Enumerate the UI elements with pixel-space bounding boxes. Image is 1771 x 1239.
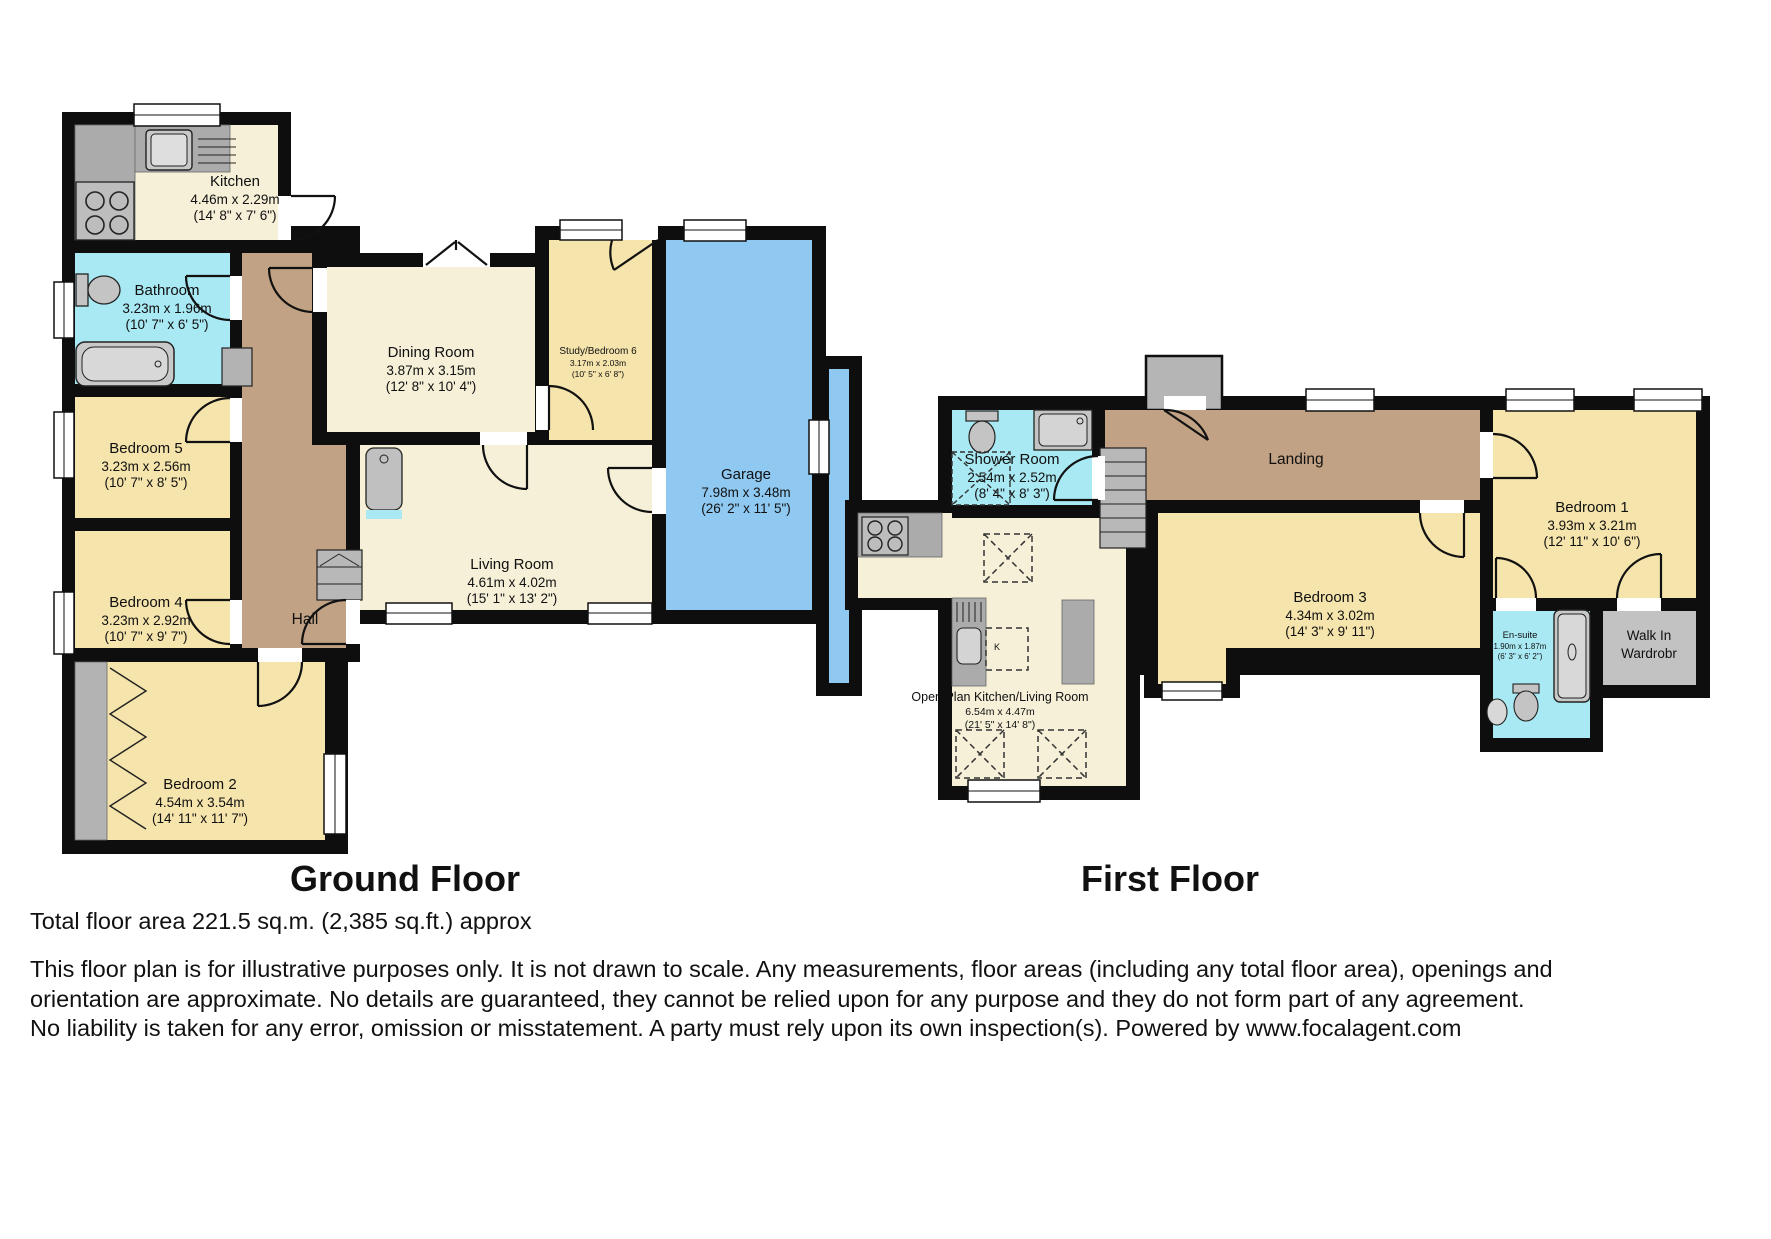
label-bedroom1: Bedroom 1 3.93m x 3.21m (12' 11" x 10' 6… (1543, 499, 1640, 551)
label-bedroom3: Bedroom 3 4.34m x 3.02m (14' 3" x 9' 11"… (1285, 589, 1375, 641)
stairs-up-icon (1100, 448, 1146, 548)
label-kitchen: Kitchen 4.46m x 2.29m (14' 8" x 7' 6") (190, 173, 279, 225)
stove-icon (862, 517, 908, 555)
label-garage: Garage 7.98m x 3.48m (26' 2" x 11' 5") (701, 466, 791, 518)
label-bedroom4: Bedroom 4 3.23m x 2.92m (10' 7" x 9' 7") (101, 594, 190, 646)
cylinder-icon (366, 448, 402, 510)
toilet-tank-icon (76, 274, 88, 306)
sink-icon (957, 628, 981, 664)
label-walkin-wardrobe: Walk In Wardrobr (1621, 627, 1677, 662)
label-landing: Landing (1268, 450, 1323, 469)
floorplan-page: Kitchen 4.46m x 2.29m (14' 8" x 7' 6") B… (0, 0, 1771, 1239)
total-floor-area: Total floor area 221.5 sq.m. (2,385 sq.f… (30, 908, 532, 935)
counter (1062, 600, 1094, 684)
label-hall: Hall (292, 610, 319, 629)
kitchen-table-letter: K (994, 642, 1000, 652)
bedroom3-bay (1158, 644, 1226, 684)
garage-room (666, 240, 812, 610)
toilet-icon (88, 276, 120, 304)
label-dining: Dining Room 3.87m x 3.15m (12' 8" x 10' … (386, 344, 477, 396)
wardrobe-strip (75, 662, 107, 840)
label-openplan: Open Plan Kitchen/Living Room 6.54m x 4.… (911, 690, 1088, 732)
ground-floor-title: Ground Floor (290, 858, 520, 900)
label-bedroom2: Bedroom 2 4.54m x 3.54m (14' 11" x 11' 7… (152, 776, 248, 828)
label-ensuite: En-suite 1.90m x 1.87m (6' 3" x 6' 2") (1494, 630, 1547, 662)
study-room (549, 240, 652, 440)
first-floor-plan (809, 356, 1710, 802)
toilet-icon (969, 421, 995, 453)
toilet-tank-icon (966, 411, 998, 421)
label-bathroom: Bathroom 3.23m x 1.96m (10' 7" x 6' 5") (122, 282, 211, 334)
toilet-icon (1514, 691, 1538, 721)
first-floor-title: First Floor (1081, 858, 1259, 900)
bidet-icon (1487, 699, 1507, 725)
disclaimer-text: This floor plan is for illustrative purp… (30, 955, 1560, 1044)
label-study: Study/Bedroom 6 3.17m x 2.03m (10' 5" x … (559, 346, 636, 379)
label-living: Living Room 4.61m x 4.02m (15' 1" x 13' … (467, 556, 558, 608)
label-shower-room: Shower Room 2.54m x 2.52m (8' 4" x 8' 3"… (964, 451, 1059, 503)
label-bedroom5: Bedroom 5 3.23m x 2.56m (10' 7" x 8' 5") (101, 440, 190, 492)
cupboard-icon (222, 348, 252, 386)
stairs-icon (317, 550, 362, 600)
